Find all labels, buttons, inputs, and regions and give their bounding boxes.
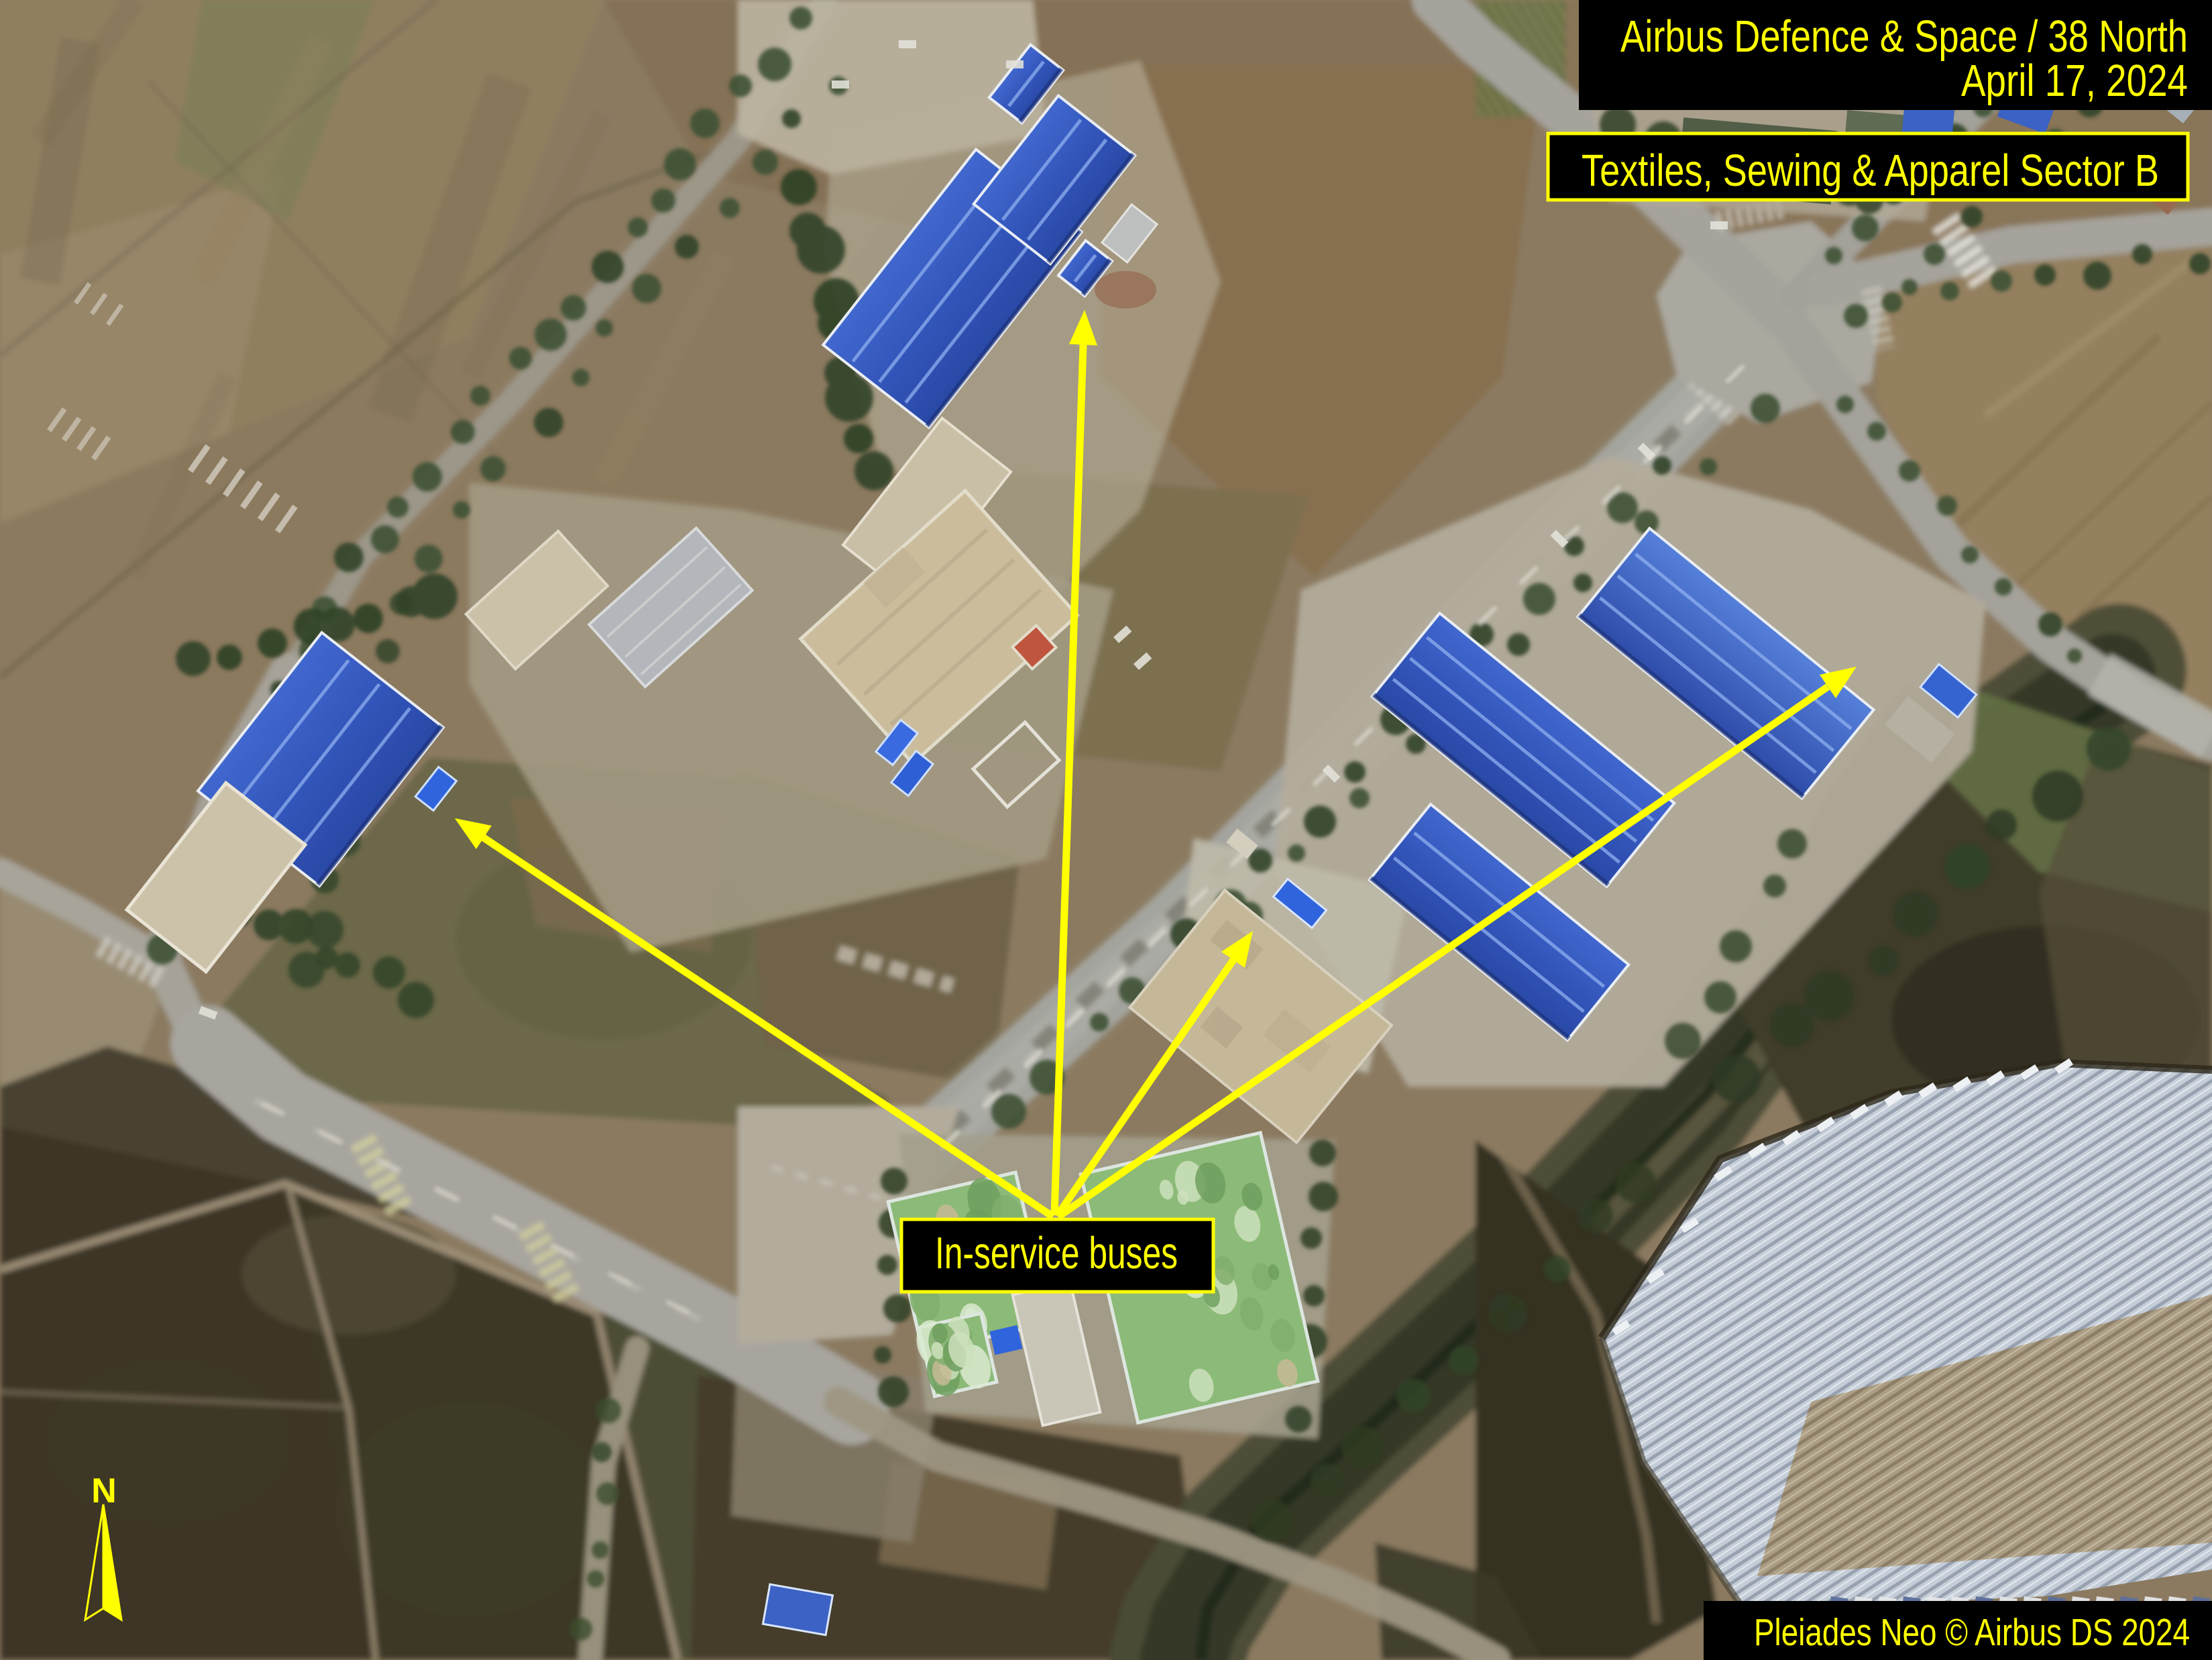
svg-text:In-service buses: In-service buses	[935, 1228, 1178, 1278]
svg-text:Airbus Defence & Space / 38 No: Airbus Defence & Space / 38 North	[1620, 11, 2188, 62]
svg-text:April 17, 2024: April 17, 2024	[1961, 56, 2188, 106]
svg-text:Textiles, Sewing & Apparel Sec: Textiles, Sewing & Apparel Sector B	[1582, 146, 2159, 196]
svg-text:Pleiades Neo © Airbus DS 2024: Pleiades Neo © Airbus DS 2024	[1754, 1611, 2190, 1654]
